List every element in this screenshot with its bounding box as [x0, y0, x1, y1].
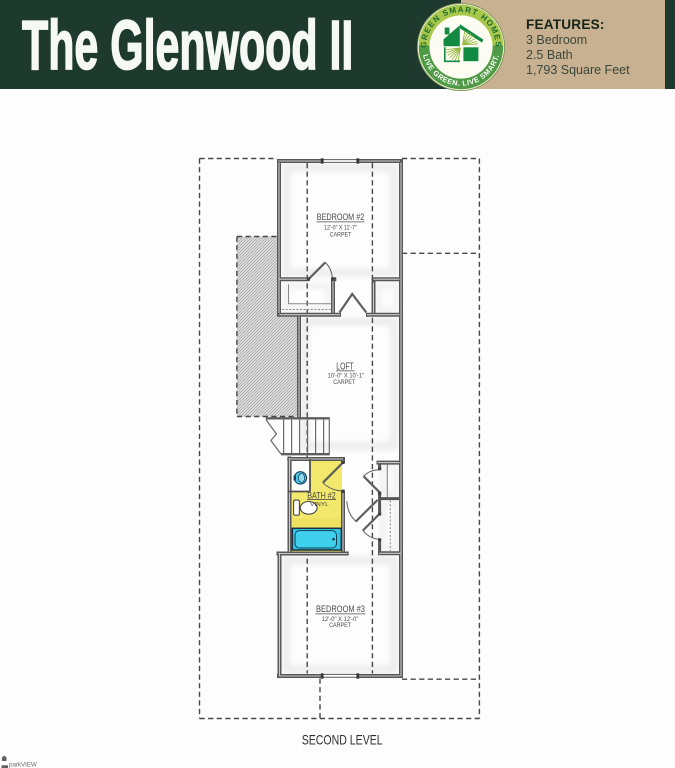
- svg-text:parkVIEW: parkVIEW: [9, 762, 37, 768]
- svg-text:VINYL: VINYL: [310, 502, 329, 508]
- svg-text:CARPET: CARPET: [333, 379, 355, 386]
- svg-text:BATH #2: BATH #2: [307, 490, 336, 500]
- svg-text:12'-0" X 11'-7": 12'-0" X 11'-7": [324, 224, 357, 231]
- svg-text:BEDROOM #2: BEDROOM #2: [317, 212, 365, 222]
- svg-text:CARPET: CARPET: [329, 622, 351, 629]
- svg-text:CARPET: CARPET: [330, 232, 352, 239]
- svg-text:BEDROOM #3: BEDROOM #3: [316, 604, 365, 614]
- svg-text:SECOND LEVEL: SECOND LEVEL: [302, 733, 383, 748]
